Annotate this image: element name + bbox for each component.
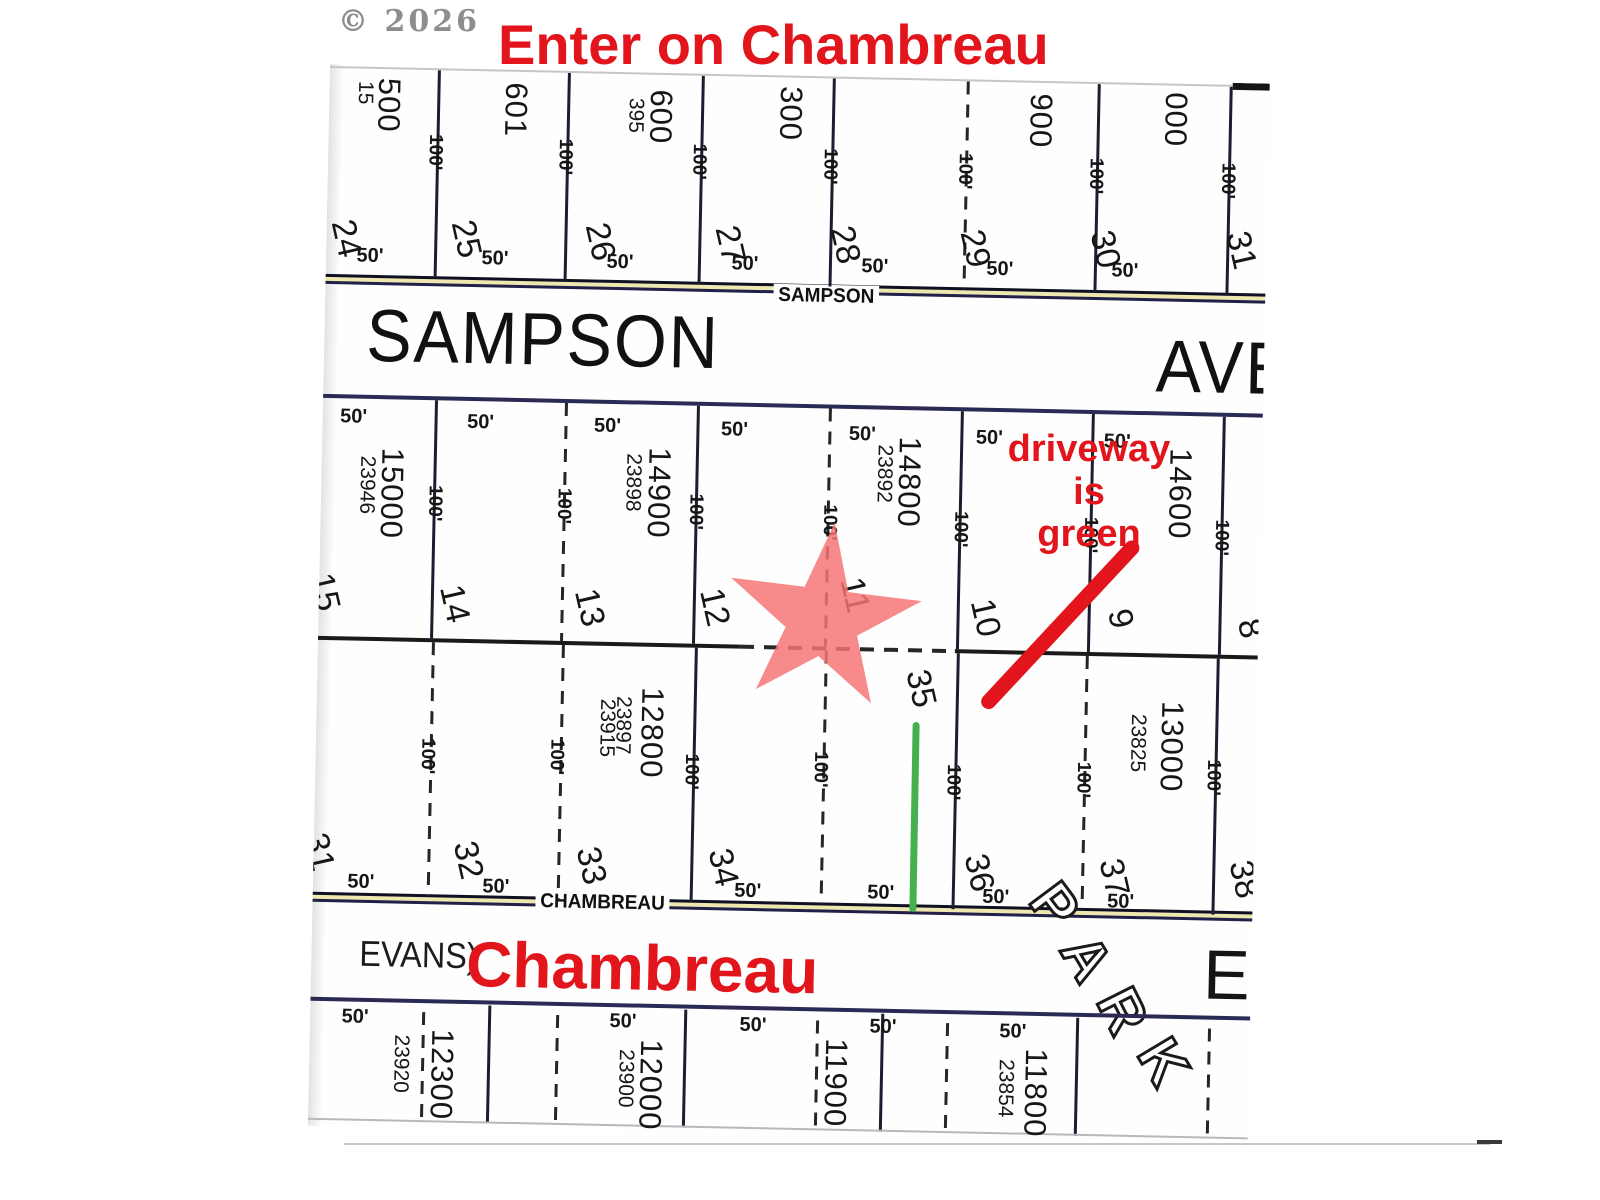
lot-address-label: 600	[645, 89, 677, 144]
lot-number-label: 33	[571, 843, 613, 887]
lot-depth-label: 100'	[951, 511, 971, 548]
lot-number-label: 38	[1223, 857, 1265, 901]
lot-address-label: 11800	[1019, 1048, 1052, 1138]
lot-width-label: 50'	[861, 256, 888, 277]
lot-depth-label: 100'	[943, 764, 963, 801]
chambreau-street-small-label: CHAMBREAU	[535, 890, 670, 916]
lot-width-label: 50'	[999, 1021, 1026, 1042]
lot-boundary-line	[682, 1010, 687, 1128]
sampson-ave-label: AVE	[1155, 323, 1270, 411]
lot-number-label: 35	[900, 666, 942, 710]
lot-number-label: 15	[308, 570, 346, 614]
evans-street-label: EVANS)	[359, 933, 478, 977]
lot-depth-label: 100'	[686, 493, 706, 530]
tax-account-label: 23854	[995, 1059, 1017, 1118]
driveway-note-text: driveway is green	[989, 428, 1189, 556]
lot-width-label: 50'	[467, 412, 494, 433]
lot-depth-label: 100'	[689, 143, 709, 180]
lot-width-label: 50'	[594, 416, 621, 437]
lot-depth-label: 100'	[425, 134, 445, 171]
park-letter-a: A	[1047, 923, 1126, 993]
lot-depth-label: 100'	[820, 148, 840, 185]
lot-width-label: 50'	[1107, 891, 1134, 912]
lot-boundary-line	[944, 1023, 949, 1129]
lot-address-label: 11900	[819, 1038, 852, 1128]
block-boundary-line	[308, 1118, 1248, 1140]
lot-width-label: 50'	[340, 406, 367, 427]
lot-depth-label: 100'	[418, 738, 438, 775]
lot-address-label: 601	[500, 82, 532, 137]
lot-depth-label: 100'	[547, 739, 567, 776]
lot-width-label: 50'	[982, 887, 1009, 908]
lot-width-label: 50'	[341, 1006, 368, 1027]
lot-depth-label: 100'	[555, 139, 575, 176]
lot-number-label: 13	[569, 585, 611, 629]
page: { "colors": { "annotation_red": "#e1151b…	[0, 0, 1600, 1200]
lot-depth-label: 100'	[1218, 162, 1238, 199]
lot-address-label: 13000	[1155, 701, 1188, 793]
lot-width-label: 50'	[869, 1016, 896, 1037]
lot-depth-label: 100'	[1203, 759, 1223, 796]
lot-address-label: 12800	[636, 687, 669, 779]
lot-depth-label: 100'	[1073, 762, 1093, 799]
block-boundary-line	[318, 636, 740, 649]
sampson-street-small-label: SAMPSON	[773, 284, 879, 309]
block-boundary-line	[955, 649, 1258, 659]
lot-boundary-line	[554, 1015, 559, 1121]
lot-width-label: 50'	[347, 872, 374, 893]
lot-number-label: 9	[1102, 606, 1139, 632]
tax-account-label: 23897	[612, 696, 634, 755]
lot-number-label: 31	[308, 830, 341, 874]
park-letter-k: K	[1124, 1026, 1203, 1096]
lot-depth-label: 100'	[681, 753, 701, 790]
lot-width-label: 50'	[867, 882, 894, 903]
lot-number-label: 12	[694, 585, 736, 629]
lot-boundary-line	[486, 1005, 491, 1123]
lot-address-label: 000	[1160, 92, 1192, 147]
lot-boundary-line	[1206, 1029, 1211, 1135]
park-letter-r: R	[1083, 977, 1162, 1045]
lot-number-label: 28	[825, 223, 867, 267]
lot-depth-label: 100'	[955, 153, 975, 190]
lot-width-label: 50'	[481, 248, 508, 269]
lot-number-label: 14	[434, 581, 476, 625]
lot-number-label: 31	[1221, 228, 1263, 272]
lot-depth-label: 100'	[810, 751, 830, 788]
lot-width-label: 50'	[482, 876, 509, 897]
block-boundary-line	[323, 394, 1263, 418]
lot-width-label: 50'	[1111, 260, 1138, 281]
lot-width-label: 50'	[734, 881, 761, 902]
lot-width-label: 50'	[609, 1011, 636, 1032]
tax-account-label: 23920	[390, 1034, 412, 1093]
lot-width-label: 50'	[721, 419, 748, 440]
lot-address-label: 900	[1025, 93, 1057, 148]
photo-bottom-edge	[344, 1143, 1490, 1145]
lot-number-label: 10	[965, 596, 1007, 640]
lot-width-label: 50'	[356, 246, 383, 267]
lot-address-label: 12000	[634, 1039, 667, 1131]
lot-boundary-line	[1074, 1018, 1079, 1136]
sampson-street-large-label: SAMPSON	[365, 293, 720, 385]
lot-width-label: 50'	[606, 252, 633, 273]
block-boundary-line	[1233, 83, 1270, 91]
lot-depth-label: 100'	[1086, 158, 1106, 195]
lot-depth-label: 100'	[1211, 519, 1231, 556]
enter-note-text: Enter on Chambreau	[498, 12, 1049, 77]
lot-address-label: 300	[775, 86, 807, 141]
tax-account-label: 23825	[1127, 714, 1149, 773]
lot-number-label: 8	[1232, 615, 1269, 641]
lot-boundary-line	[434, 70, 441, 278]
lot-address-label: 14900	[643, 447, 676, 539]
lot-address-label: 12300	[425, 1029, 458, 1121]
lot-width-label: 50'	[739, 1015, 766, 1036]
photo-bottom-edge-mark	[1477, 1140, 1502, 1144]
lot-boundary-line	[564, 73, 571, 281]
lot-width-label: 50'	[849, 424, 876, 445]
lot-depth-label: 100'	[554, 488, 574, 525]
chambreau-street-large-label: Chambreau	[465, 927, 819, 1008]
lot-width-label: 50'	[731, 253, 758, 274]
lot-width-label: 50'	[986, 259, 1013, 280]
lot-address-label: 500	[373, 78, 405, 133]
lot-address-label: 15000	[376, 447, 409, 539]
lot-address-label: 14800	[893, 436, 926, 528]
lot-depth-label: 100'	[425, 485, 445, 522]
street-e-label: E	[1202, 934, 1250, 1015]
copyright-watermark: © 2026	[338, 4, 480, 39]
driveway-note-line1: driveway is	[1008, 428, 1171, 513]
